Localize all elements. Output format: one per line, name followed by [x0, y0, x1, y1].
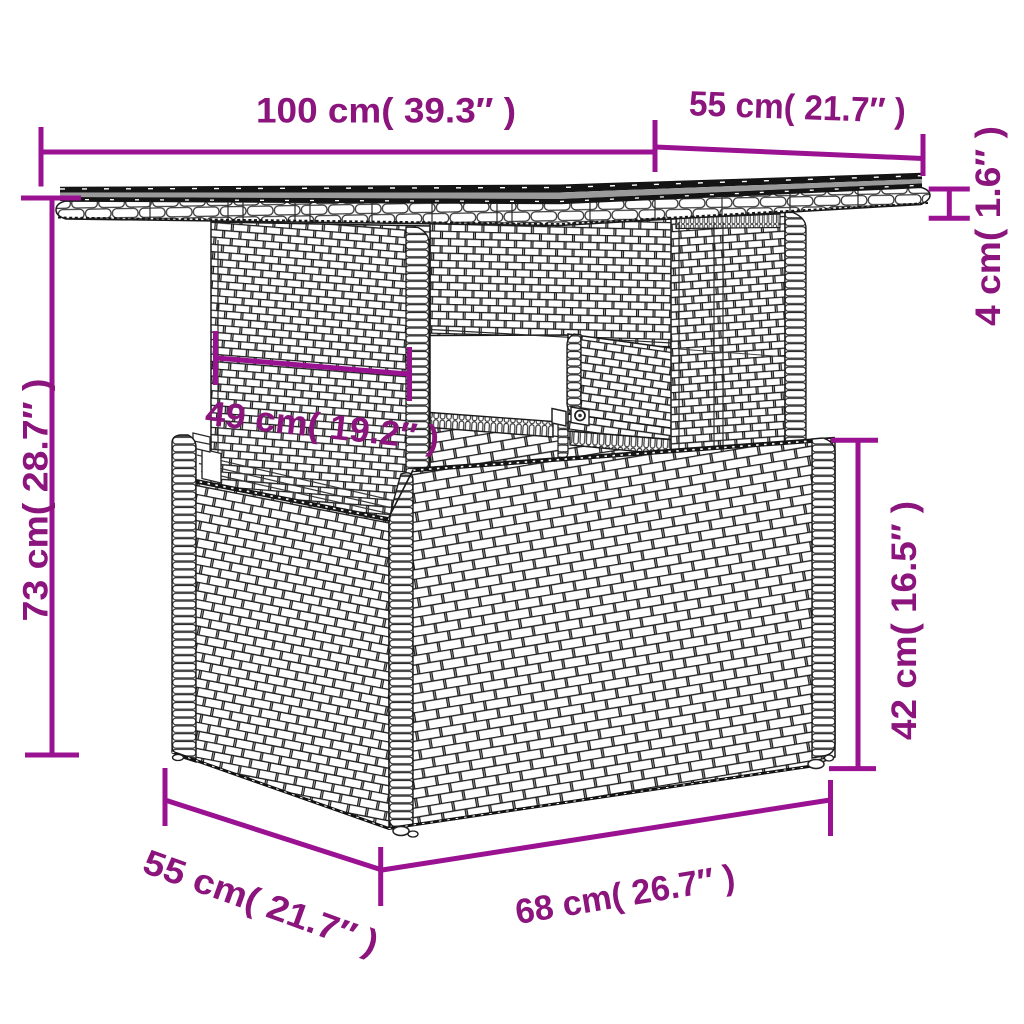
- svg-text:73 cm( 28.7″ ): 73 cm( 28.7″ ): [17, 379, 56, 622]
- svg-text:4 cm( 1.6″ ): 4 cm( 1.6″ ): [969, 126, 1008, 326]
- svg-text:100 cm( 39.3″ ): 100 cm( 39.3″ ): [256, 92, 516, 131]
- svg-text:42 cm( 16.5″ ): 42 cm( 16.5″ ): [885, 501, 924, 740]
- svg-text:55 cm( 21.7″ ): 55 cm( 21.7″ ): [688, 84, 906, 131]
